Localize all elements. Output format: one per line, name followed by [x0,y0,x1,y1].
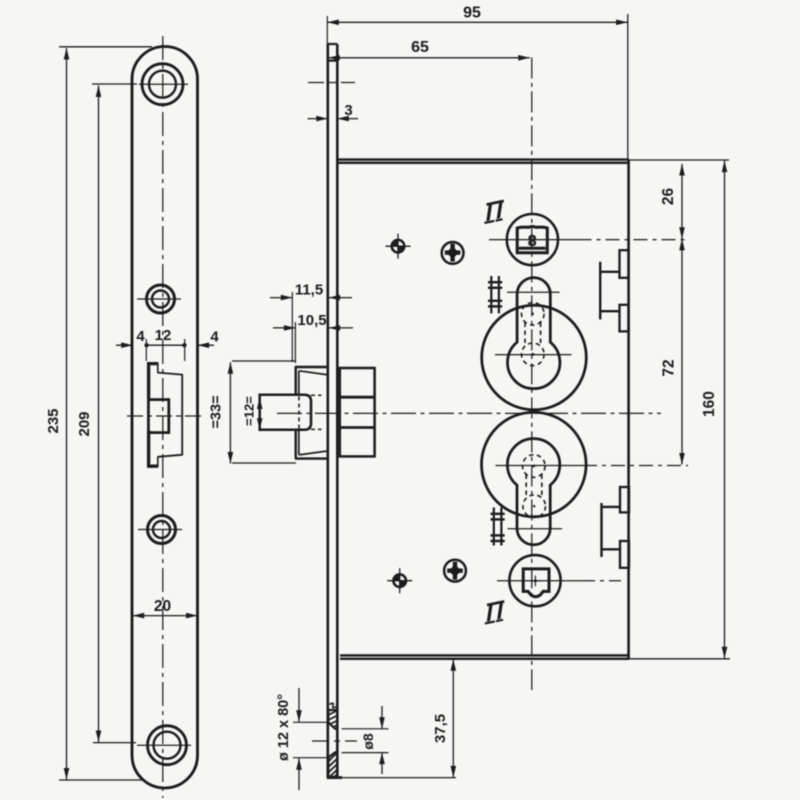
svg-text:3: 3 [344,102,352,119]
svg-text:26: 26 [660,188,677,206]
svg-text:=33=: =33= [209,395,225,428]
svg-text:ø8: ø8 [360,733,376,750]
svg-text:11,5: 11,5 [295,282,323,299]
svg-text:4: 4 [136,328,145,345]
svg-text:160: 160 [701,391,718,417]
svg-text:ø 12 x 80°: ø 12 x 80° [276,694,292,761]
svg-text:8: 8 [528,233,537,250]
svg-text:37,5: 37,5 [432,714,449,743]
svg-text:=12=: =12= [242,396,257,426]
svg-text:12: 12 [155,327,172,344]
svg-text:10,5: 10,5 [297,312,326,329]
svg-text:95: 95 [463,5,481,22]
svg-text:65: 65 [411,39,429,56]
svg-text:235: 235 [45,408,62,433]
svg-text:209: 209 [76,411,93,436]
svg-text:4: 4 [210,329,219,346]
svg-text:20: 20 [154,598,171,615]
svg-text:72: 72 [661,359,678,376]
